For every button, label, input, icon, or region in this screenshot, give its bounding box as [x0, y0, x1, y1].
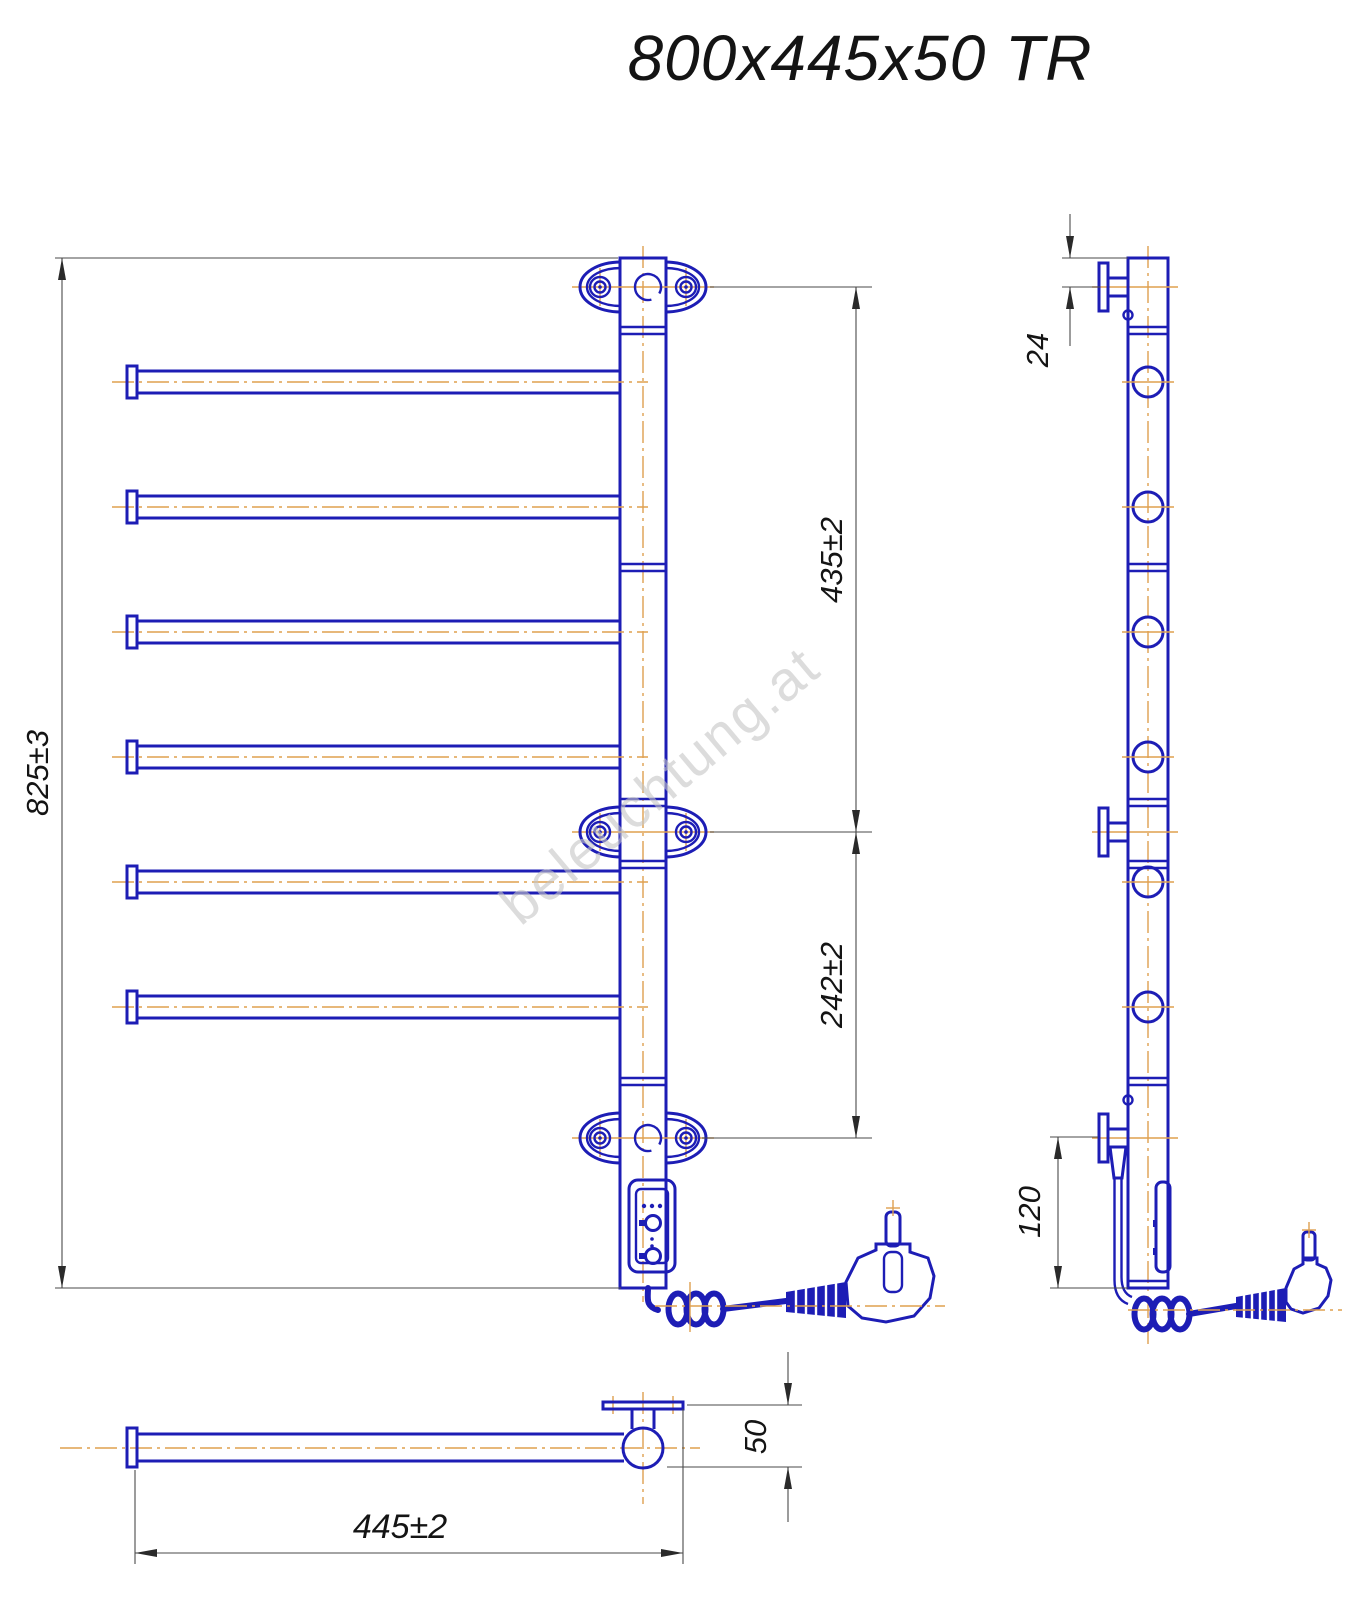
dim-upper-span: 435±2	[814, 517, 849, 603]
timer-button-icon	[646, 1249, 661, 1264]
cable-gland	[1110, 1147, 1126, 1178]
towel-rungs	[112, 366, 648, 1023]
led-indicator	[650, 1237, 654, 1241]
front-view	[112, 246, 945, 1332]
plug-body	[1286, 1258, 1331, 1313]
dim-lower-span: 242±2	[814, 942, 849, 1029]
power-cord-front	[648, 1200, 945, 1332]
bottom-view	[60, 1392, 700, 1504]
dim-overall-height: 825±3	[20, 730, 55, 816]
led-indicator	[658, 1204, 662, 1208]
plug-pin	[886, 1212, 900, 1246]
power-cord-side	[1110, 1147, 1342, 1330]
power-button-icon	[646, 1216, 661, 1231]
drawing-page: 800x445x50 TR	[0, 0, 1370, 1600]
dim-bracket-offset-top: 24	[1020, 333, 1055, 368]
plug-body	[846, 1244, 934, 1322]
control-unit	[629, 1180, 675, 1272]
watermark: beleuchtung.at	[488, 634, 831, 936]
dim-bracket-offset-bottom: 120	[1012, 1186, 1047, 1238]
drawing-title: 800x445x50 TR	[628, 22, 1093, 94]
technical-drawing: 800x445x50 TR	[0, 0, 1370, 1600]
led-indicator	[642, 1204, 646, 1208]
dim-depth: 50	[738, 1420, 773, 1454]
side-view	[1092, 246, 1342, 1344]
side-wall-brackets	[1092, 263, 1178, 1162]
dim-overall-width: 445±2	[353, 1508, 447, 1546]
led-indicator	[650, 1204, 654, 1208]
